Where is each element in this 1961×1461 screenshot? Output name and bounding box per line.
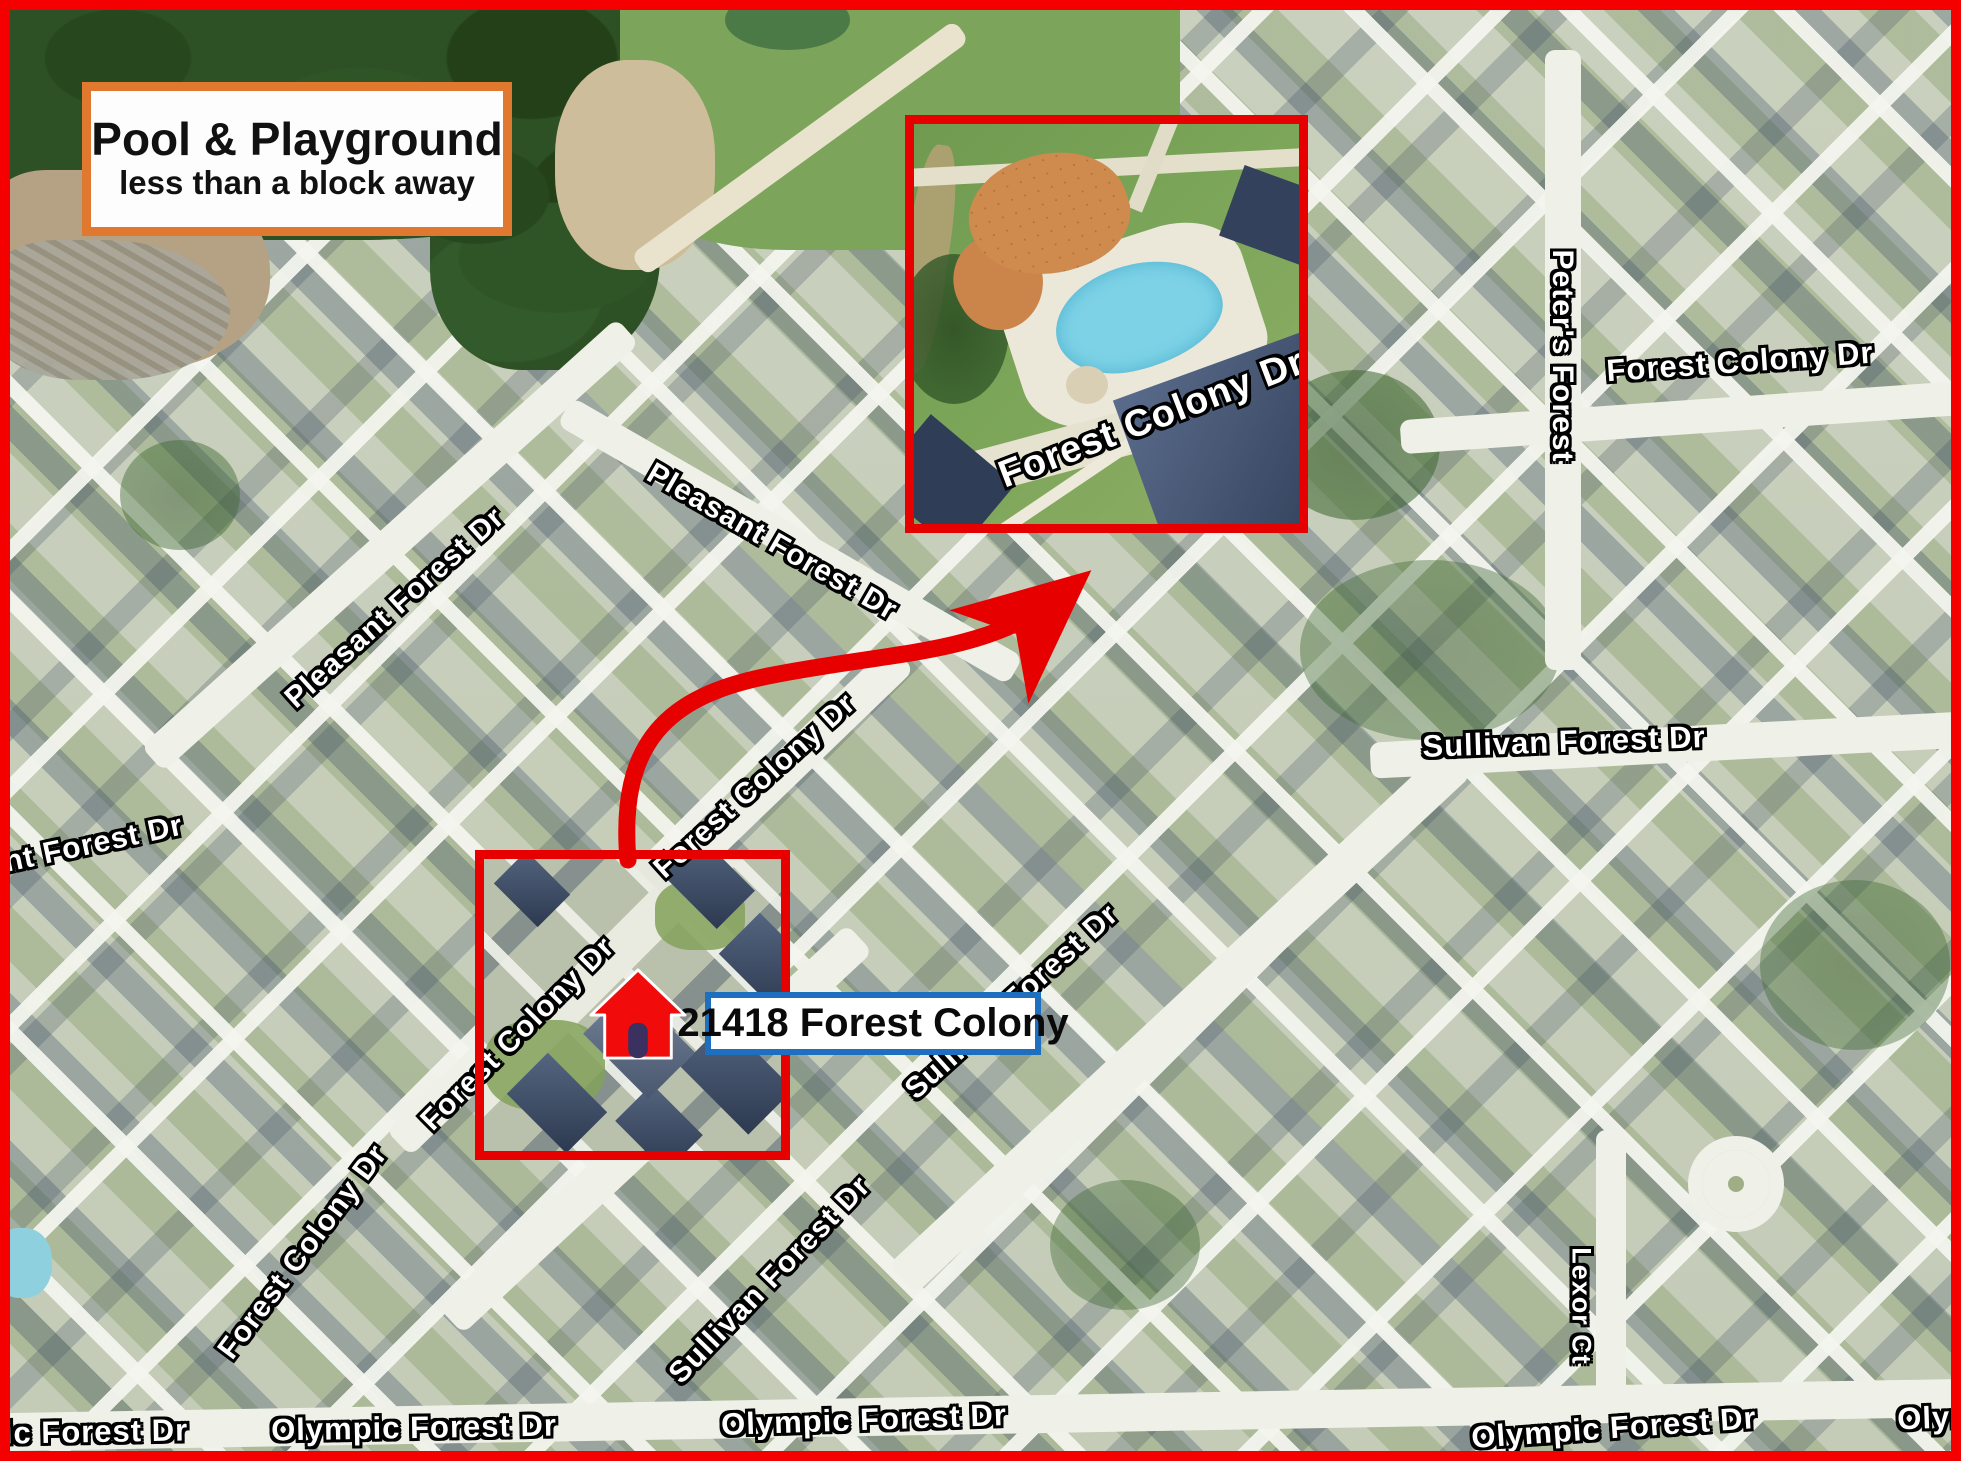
house-icon [589, 968, 687, 1062]
tree-cluster [1760, 880, 1950, 1050]
street-label: Olympic Forest Dr [271, 1408, 557, 1449]
backyard-pool [0, 1228, 52, 1298]
address-text: 21418 Forest Colony [677, 1001, 1068, 1046]
pool-callout: Pool & Playground less than a block away [82, 82, 512, 236]
street-label: Lexor Ct [1566, 1247, 1597, 1365]
callout-subtitle: less than a block away [119, 163, 475, 203]
spa-circle [1066, 366, 1108, 404]
tree-cluster [1300, 560, 1560, 740]
address-label: 21418 Forest Colony [705, 992, 1041, 1055]
map-flyer: Pleasant Forest DrPleasant Forest DrFore… [0, 0, 1961, 1461]
street-label: Olym [1897, 1399, 1961, 1438]
road-lexor-ct [1596, 1130, 1626, 1410]
callout-title: Pool & Playground [91, 115, 502, 163]
street-label: Peter's Forest [1545, 250, 1579, 463]
tree-cluster [120, 440, 240, 550]
street-label: ic Forest Dr [4, 1412, 189, 1451]
tree-cluster [1050, 1180, 1200, 1310]
cul-de-sac [1688, 1136, 1784, 1232]
pool-playground-inset: Forest Colony Dr [905, 115, 1308, 533]
